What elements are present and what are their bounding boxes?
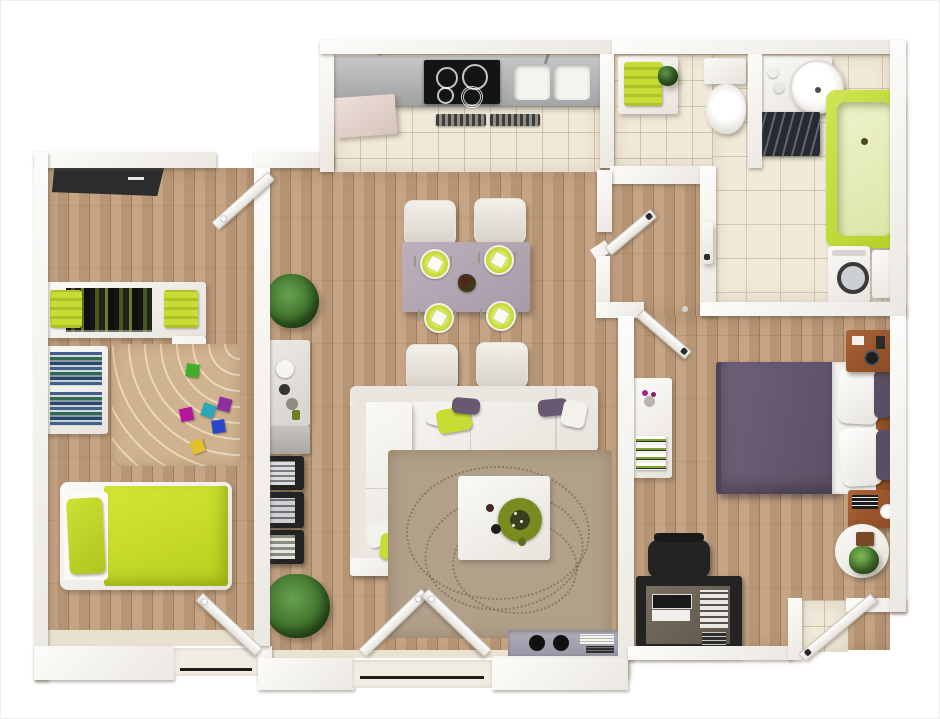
bedroom2-door (211, 172, 275, 231)
door-knob-icon (220, 215, 227, 222)
master-door (636, 309, 692, 359)
french-door-left (358, 588, 429, 657)
door-handle-icon (804, 648, 812, 656)
wc-door (604, 209, 657, 256)
master-exit-door (798, 593, 877, 662)
door-handle-icon (645, 212, 653, 220)
bedroom2-balcony-door (195, 592, 262, 656)
floor-plan-canvas (0, 0, 940, 719)
door-handle-icon (680, 347, 688, 355)
door-handle-icon (704, 254, 710, 260)
french-door-right (421, 588, 492, 657)
door-knob-icon (428, 595, 435, 602)
bathroom-door (702, 222, 713, 264)
doors (0, 0, 940, 719)
door-knob-icon (201, 598, 208, 605)
